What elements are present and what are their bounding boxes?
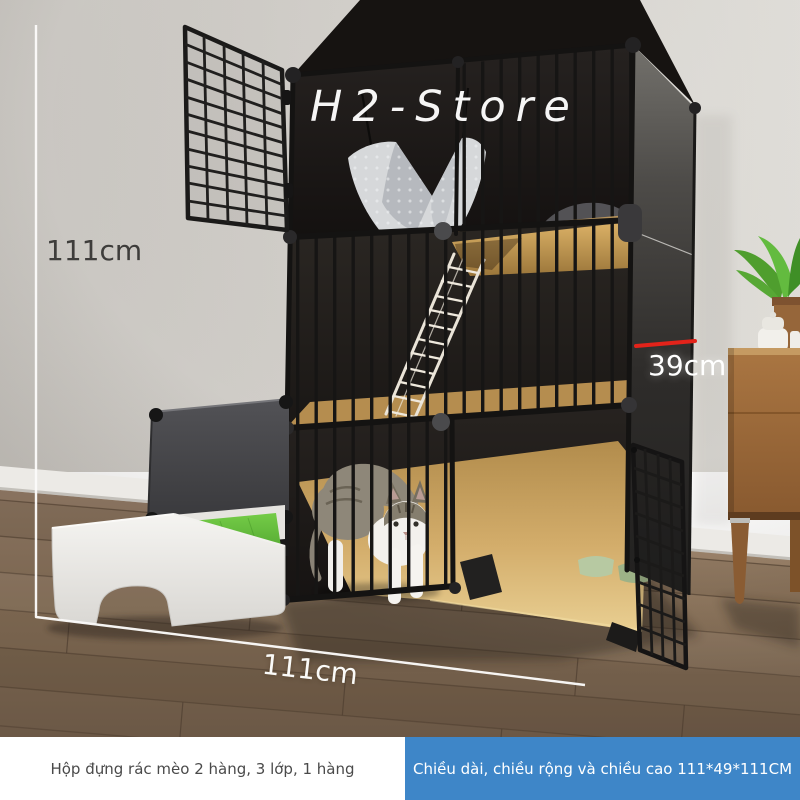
caption-right-text: Chiều dài, chiều rộng và chiều cao 111*4… bbox=[405, 737, 800, 800]
caption-bar: Hộp đựng rác mèo 2 hàng, 3 lớp, 1 hàng C… bbox=[0, 737, 800, 800]
product-photo bbox=[0, 0, 800, 737]
cabinet-body bbox=[728, 348, 800, 520]
litter-drawer bbox=[47, 505, 285, 640]
product-listing-image: H2-Store 111cm 39cm 111cm Hộp đựng rác m… bbox=[0, 0, 800, 800]
caption-left-text: Hộp đựng rác mèo 2 hàng, 3 lớp, 1 hàng bbox=[0, 737, 405, 800]
